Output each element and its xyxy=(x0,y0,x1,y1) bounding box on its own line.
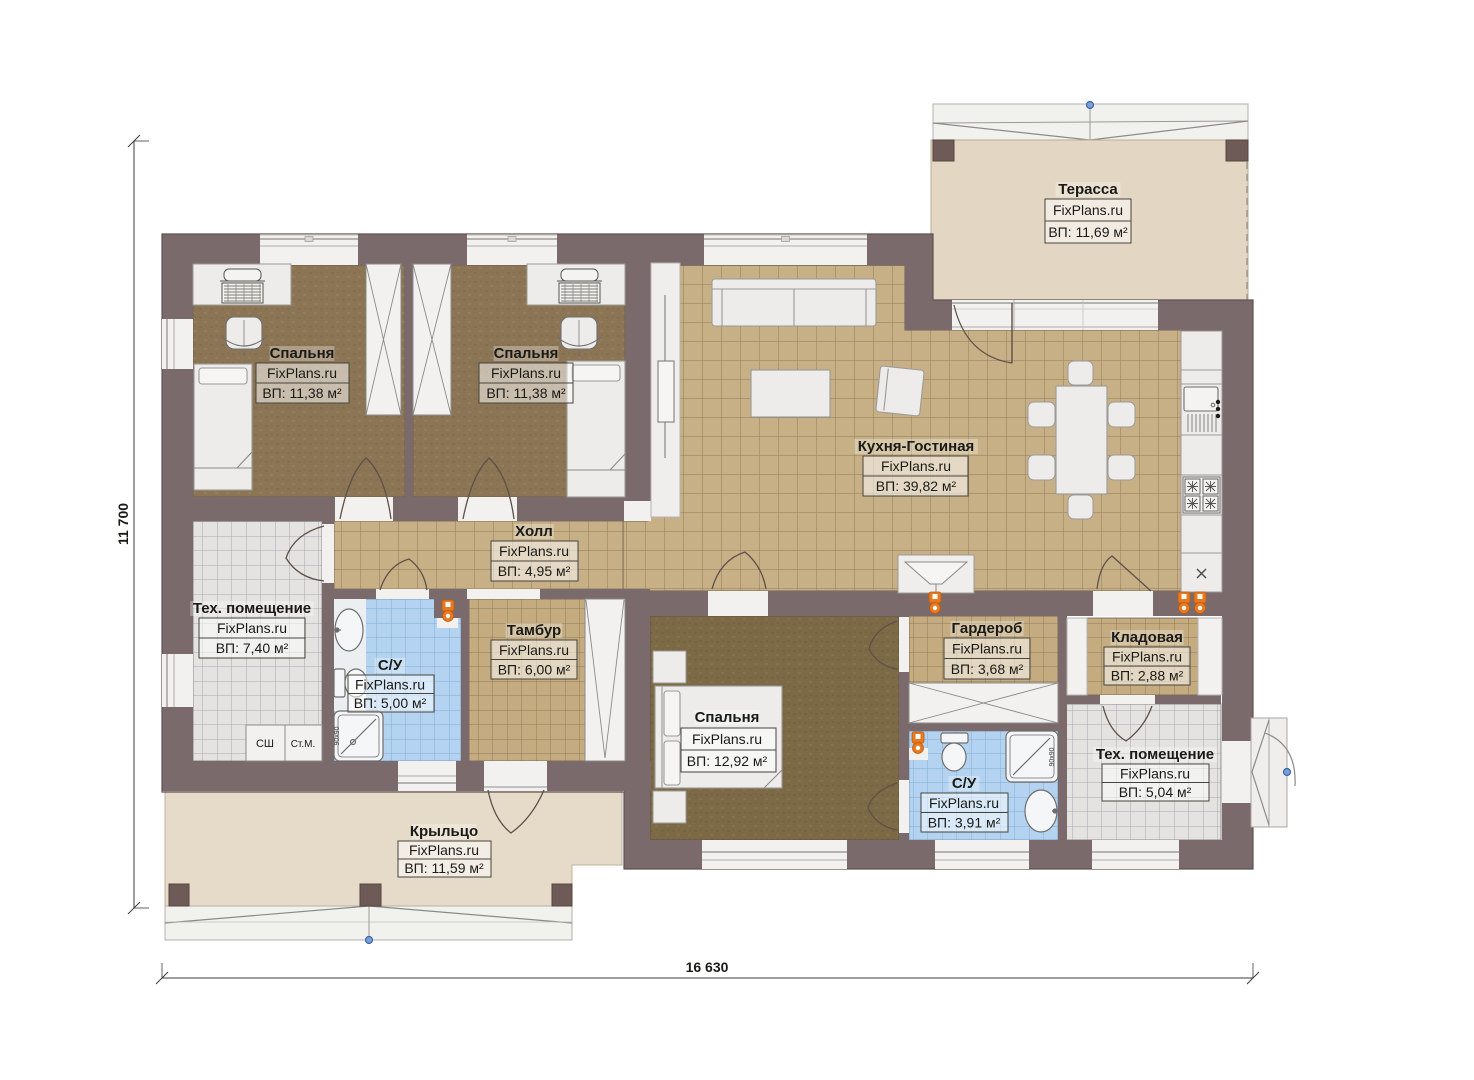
svg-text:ВП: 39,82 м²: ВП: 39,82 м² xyxy=(876,478,957,494)
svg-text:ВП: 6,00 м²: ВП: 6,00 м² xyxy=(498,661,571,677)
svg-text:FixPlans.ru: FixPlans.ru xyxy=(267,365,337,381)
svg-text:ВП: 4,95 м²: ВП: 4,95 м² xyxy=(498,563,571,579)
svg-text:ВП: 2,88 м²: ВП: 2,88 м² xyxy=(1111,668,1184,684)
svg-text:ВП: 12,92 м²: ВП: 12,92 м² xyxy=(687,753,768,769)
svg-text:Кухня-Гостиная: Кухня-Гостиная xyxy=(858,438,975,455)
svg-text:90x90: 90x90 xyxy=(1049,747,1056,766)
svg-text:Кладовая: Кладовая xyxy=(1111,629,1183,646)
svg-text:FixPlans.ru: FixPlans.ru xyxy=(881,458,951,474)
svg-text:С/У: С/У xyxy=(378,657,403,674)
svg-text:11 700: 11 700 xyxy=(115,503,131,545)
svg-text:Крыльцо: Крыльцо xyxy=(410,823,478,840)
svg-text:FixPlans.ru: FixPlans.ru xyxy=(217,620,287,636)
svg-text:FixPlans.ru: FixPlans.ru xyxy=(929,795,999,811)
svg-text:ВП: 3,68 м²: ВП: 3,68 м² xyxy=(951,661,1024,677)
svg-text:ВП: 5,00 м²: ВП: 5,00 м² xyxy=(354,695,427,711)
svg-text:FixPlans.ru: FixPlans.ru xyxy=(692,731,762,747)
svg-text:ВП: 11,38 м²: ВП: 11,38 м² xyxy=(262,385,342,401)
svg-text:FixPlans.ru: FixPlans.ru xyxy=(1120,765,1190,781)
svg-text:Спальня: Спальня xyxy=(695,709,760,726)
svg-text:ВП: 11,69 м²: ВП: 11,69 м² xyxy=(1048,224,1128,240)
svg-text:FixPlans.ru: FixPlans.ru xyxy=(499,642,569,658)
svg-text:ВП: 7,40 м²: ВП: 7,40 м² xyxy=(216,640,289,656)
svg-text:ВП: 11,59 м²: ВП: 11,59 м² xyxy=(404,860,484,876)
svg-text:FixPlans.ru: FixPlans.ru xyxy=(1112,649,1182,665)
svg-text:ВП: 3,91 м²: ВП: 3,91 м² xyxy=(928,814,1001,830)
svg-text:Терасса: Терасса xyxy=(1058,181,1118,198)
svg-text:Ст.М.: Ст.М. xyxy=(291,739,316,750)
svg-text:Холл: Холл xyxy=(515,523,553,540)
svg-text:Тех. помещение: Тех. помещение xyxy=(1096,746,1214,763)
svg-text:Гардероб: Гардероб xyxy=(952,620,1023,637)
svg-text:FixPlans.ru: FixPlans.ru xyxy=(1053,202,1123,218)
svg-text:Спальня: Спальня xyxy=(494,345,559,362)
svg-text:FixPlans.ru: FixPlans.ru xyxy=(491,365,561,381)
svg-text:FixPlans.ru: FixPlans.ru xyxy=(409,842,479,858)
svg-text:FixPlans.ru: FixPlans.ru xyxy=(499,543,569,559)
svg-text:ВП: 5,04 м²: ВП: 5,04 м² xyxy=(1119,784,1192,800)
svg-text:Тех. помещение: Тех. помещение xyxy=(193,600,311,617)
svg-text:СШ: СШ xyxy=(256,738,274,750)
svg-text:90x90: 90x90 xyxy=(334,726,341,745)
svg-text:FixPlans.ru: FixPlans.ru xyxy=(952,640,1022,656)
svg-text:Тамбур: Тамбур xyxy=(507,622,561,639)
svg-text:16 630: 16 630 xyxy=(686,959,729,975)
svg-text:С/У: С/У xyxy=(952,775,977,792)
svg-text:FixPlans.ru: FixPlans.ru xyxy=(355,676,425,692)
svg-text:ВП: 11,38 м²: ВП: 11,38 м² xyxy=(486,385,566,401)
svg-text:Спальня: Спальня xyxy=(270,345,335,362)
